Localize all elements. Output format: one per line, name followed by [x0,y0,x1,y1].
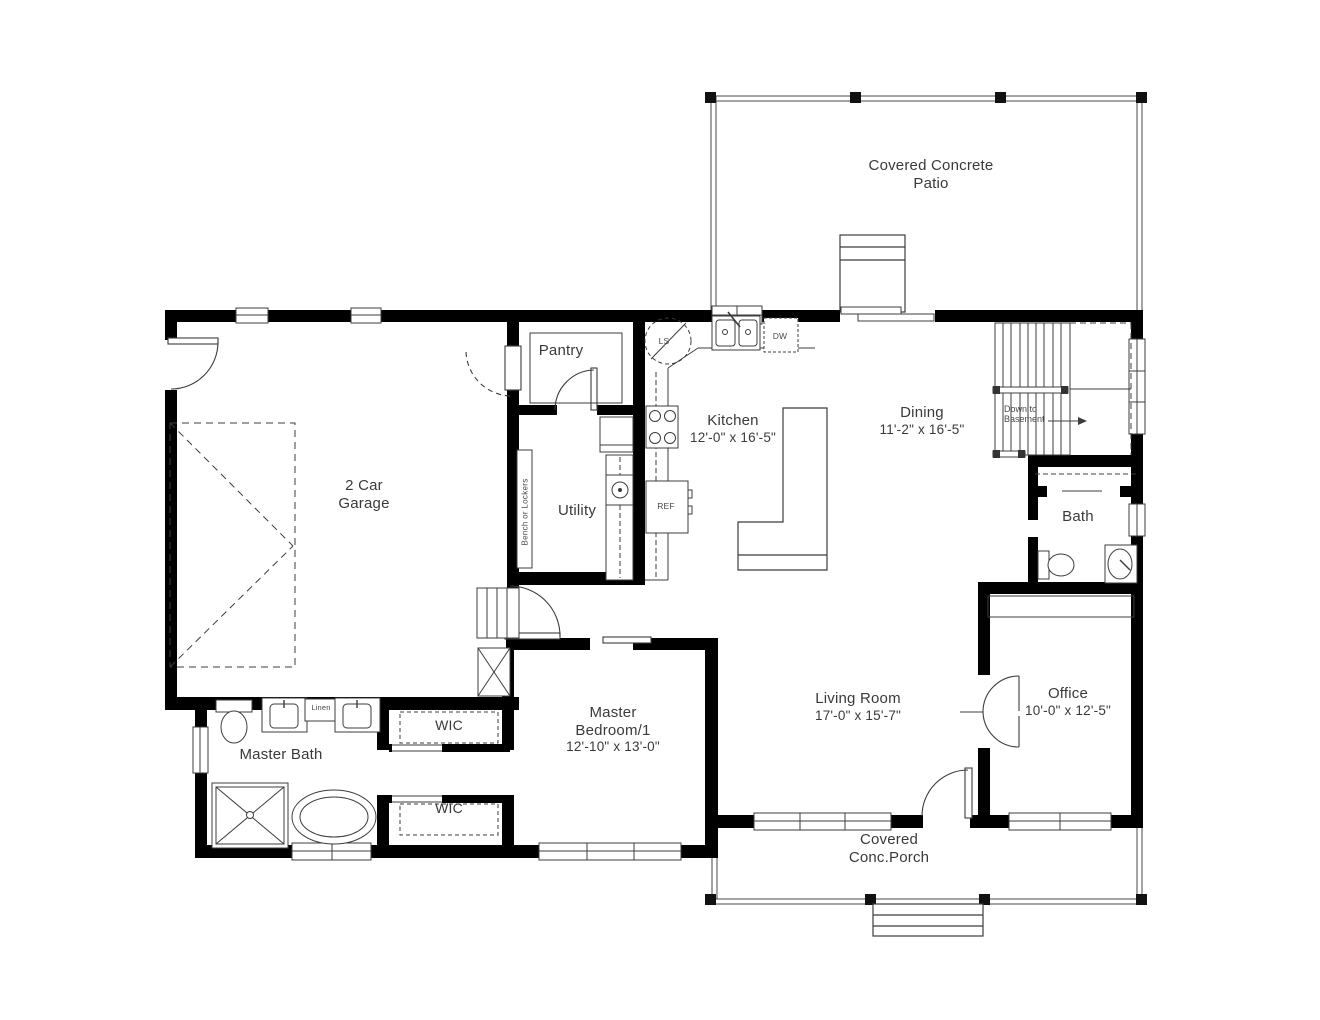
room-label-master-bedroom: Master Bedroom/1 12'-10" x 13'-0" [563,704,663,755]
mb-vanity-left [262,698,307,732]
chase-icon [478,648,510,696]
bath-sink-icon [1105,545,1137,583]
porch-steps-icon [873,904,983,936]
lazy-susan-label: LS [659,336,670,346]
shower-icon [212,783,288,848]
stairs-note: Down to Basement [1004,404,1058,425]
room-label-kitchen: Kitchen 12'-0" x 16'-5" [673,412,793,446]
garage-steps-icon [477,588,519,638]
floor-plan: Covered Concrete Patio 2 Car Garage Pant… [0,0,1320,1020]
room-label-utility: Utility [537,502,617,520]
washer-icon [600,417,633,452]
room-label-wic-upper: WIC [419,717,479,734]
room-label-living-room: Living Room 17'-0" x 15'-7" [783,690,933,724]
room-label-wic-lower: WIC [419,800,479,817]
room-label-porch: Covered Conc.Porch [837,831,941,866]
room-label-office: Office 10'-0" x 12'-5" [1008,685,1128,719]
mb-toilet-icon [216,700,252,743]
patio-outline [710,96,1142,313]
room-label-garage: 2 Car Garage [332,477,396,512]
bench-note: Bench or Lockers [521,478,530,545]
room-label-pantry: Pantry [521,342,601,360]
tub-icon [292,790,376,844]
room-label-master-bath: Master Bath [221,746,341,764]
room-label-bath: Bath [1048,508,1108,526]
office-closet-shelf [988,596,1134,617]
kitchen-sink-icon [712,312,760,350]
dryer-icon [606,475,633,505]
room-label-dining: Dining 11'-2" x 16'-5" [862,404,982,438]
room-label-patio: Covered Concrete Patio [866,157,996,192]
bath-toilet-icon [1038,551,1074,579]
garage-door-swing [170,423,295,667]
dishwasher-label: DW [773,331,788,341]
cased-openings [392,745,442,802]
refrigerator-label: REF [657,501,675,511]
sliding-door-icon [841,307,934,321]
linen-label: Linen [311,703,330,712]
patio-fireplace-icon [840,235,905,312]
mb-vanity-right [335,698,380,732]
